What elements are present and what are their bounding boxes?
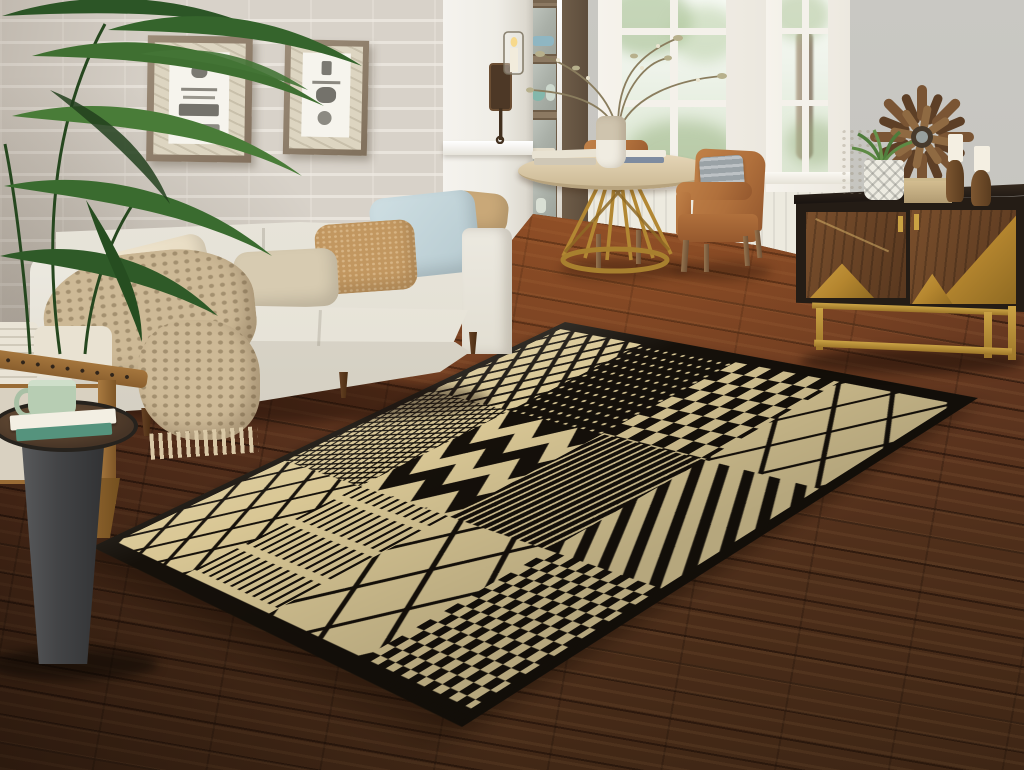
table-vase [596,116,626,168]
sconce-candle [510,48,518,72]
book-stack [534,158,596,165]
woven-box [904,178,952,203]
sconce-flame [511,37,518,47]
sunburst-mirror [916,131,928,143]
window-sill [766,172,850,184]
pillar-candle [974,146,990,172]
palm-plant [0,0,402,362]
sconce-stem [499,108,502,140]
window-right-glass [782,0,828,172]
door-handle [898,216,903,232]
pillar-candle [948,134,963,162]
brass-triangle [810,256,874,298]
candlestick [946,160,964,202]
window-mullion [782,28,828,34]
living-room-photo [0,0,1024,770]
chair-leg [704,244,709,272]
window-mullion [802,0,809,172]
dried-branches [518,28,748,128]
credenza-left-door [806,212,906,298]
window-right-casing [766,0,850,192]
door-handle [914,214,919,230]
window-mullion [782,100,828,106]
candlestick [971,170,991,206]
brass-inlay-line [815,218,889,252]
credenza-right-door [910,210,1016,304]
patterned-planter-pot [864,160,904,200]
